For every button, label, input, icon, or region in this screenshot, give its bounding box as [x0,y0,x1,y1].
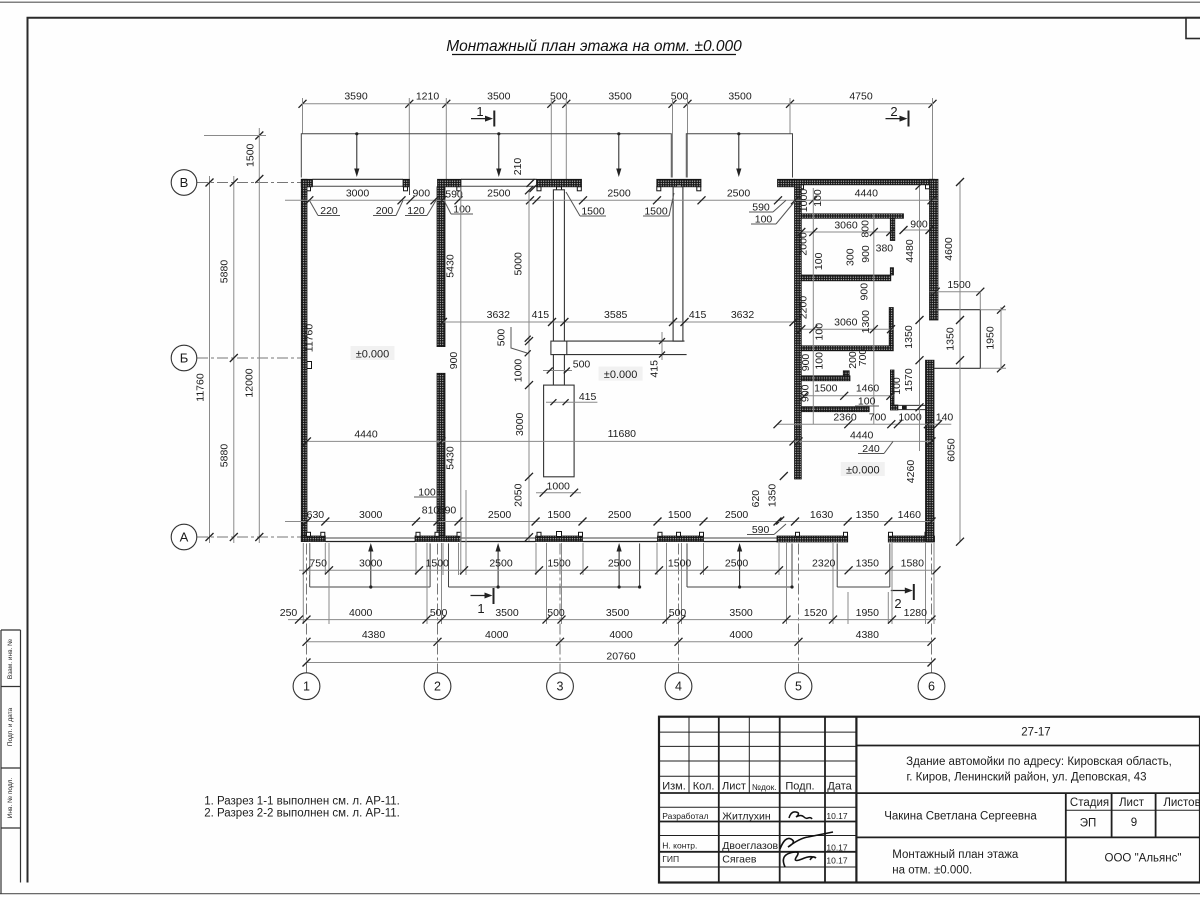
svg-text:415: 415 [579,391,597,403]
svg-text:900: 900 [448,352,460,370]
svg-text:3632: 3632 [731,309,755,321]
svg-text:1500: 1500 [814,383,838,395]
svg-text:630: 630 [307,509,325,521]
svg-text:1580: 1580 [901,558,925,570]
svg-text:620: 620 [750,490,762,508]
svg-text:810: 810 [422,505,440,517]
svg-text:4000: 4000 [729,629,753,641]
svg-text:11760: 11760 [195,373,207,402]
svg-text:250: 250 [280,607,298,619]
svg-text:1300: 1300 [860,310,872,334]
svg-text:3060: 3060 [834,317,858,329]
svg-text:2: 2 [434,680,441,694]
svg-text:1. Разрез 1-1 выполнен см. л.: 1. Разрез 1-1 выполнен см. л. АР-11. [204,796,400,808]
svg-text:1500: 1500 [426,558,450,570]
svg-text:Дата: Дата [827,781,852,793]
svg-text:1460: 1460 [898,509,922,521]
svg-text:3500: 3500 [495,607,519,619]
svg-text:Подп. и дата: Подп. и дата [7,707,14,746]
svg-text:2320: 2320 [812,558,836,570]
svg-text:3000: 3000 [346,188,370,200]
svg-text:±0.000: ±0.000 [356,349,390,361]
svg-text:1350: 1350 [903,325,915,349]
svg-text:6050: 6050 [945,438,957,462]
svg-text:900: 900 [859,283,871,301]
svg-text:4750: 4750 [849,91,873,103]
svg-text:1000: 1000 [547,480,571,492]
svg-text:3: 3 [557,680,564,694]
svg-text:3000: 3000 [514,412,526,436]
svg-text:5880: 5880 [219,444,231,468]
svg-text:380: 380 [876,243,894,255]
svg-text:750: 750 [309,558,327,570]
svg-text:900: 900 [800,354,812,372]
svg-text:2200: 2200 [798,296,810,320]
svg-text:3500: 3500 [728,91,752,103]
svg-text:300: 300 [845,248,857,266]
svg-text:5000: 5000 [512,252,524,276]
svg-text:27-17: 27-17 [1021,727,1050,739]
svg-text:590: 590 [439,505,457,517]
svg-text:500: 500 [547,607,565,619]
svg-text:3000: 3000 [359,558,383,570]
svg-text:6: 6 [928,680,935,694]
svg-text:1630: 1630 [810,509,834,521]
svg-text:4440: 4440 [354,429,378,441]
svg-text:Листов: Листов [1163,797,1200,809]
svg-text:900: 900 [800,384,812,402]
svg-text:Взам. инв. №: Взам. инв. № [7,639,14,679]
svg-text:Б: Б [180,351,189,366]
svg-text:Подп.: Подп. [785,781,814,793]
svg-text:А: А [180,530,189,545]
svg-text:Двоеглазов: Двоеглазов [722,840,778,852]
svg-text:1500: 1500 [547,509,571,521]
svg-text:2360: 2360 [833,412,857,424]
svg-text:1350: 1350 [945,327,957,351]
svg-text:140: 140 [936,412,954,424]
svg-text:3585: 3585 [604,309,628,321]
svg-text:590: 590 [445,189,463,201]
svg-text:210: 210 [512,158,524,176]
svg-text:1460: 1460 [856,383,880,395]
svg-text:ЭП: ЭП [1080,818,1097,830]
svg-text:500: 500 [430,607,448,619]
svg-text:Лист: Лист [1119,797,1145,809]
svg-text:1: 1 [477,601,484,616]
svg-text:11680: 11680 [608,428,637,440]
svg-text:2: 2 [890,104,897,119]
svg-text:10.17: 10.17 [826,843,848,853]
svg-text:1: 1 [303,680,310,694]
svg-text:Стадия: Стадия [1070,797,1109,809]
svg-text:5: 5 [795,680,802,694]
svg-text:100: 100 [891,377,903,395]
svg-text:500: 500 [550,91,568,103]
svg-text:500: 500 [495,329,507,347]
svg-text:Монтажный план этажа на отм. ±: Монтажный план этажа на отм. ±0.000 [446,38,742,55]
svg-text:1350: 1350 [767,484,779,508]
svg-text:800: 800 [860,220,872,238]
svg-text:Монтажный план этажа: Монтажный план этажа [892,849,1019,861]
svg-text:4000: 4000 [485,629,509,641]
svg-text:9: 9 [1131,817,1137,829]
svg-text:3500: 3500 [606,607,630,619]
svg-text:1950: 1950 [856,607,880,619]
svg-text:1280: 1280 [904,607,928,619]
svg-text:500: 500 [669,607,687,619]
svg-text:500: 500 [671,91,689,103]
svg-text:100: 100 [814,352,826,370]
svg-text:4: 4 [675,680,682,694]
svg-text:1000: 1000 [898,412,922,424]
svg-text:1500: 1500 [668,509,692,521]
svg-text:2500: 2500 [725,558,749,570]
svg-text:2: 2 [894,596,901,611]
svg-text:5430: 5430 [445,446,457,470]
svg-text:700: 700 [857,349,869,367]
svg-text:900: 900 [413,188,431,200]
svg-text:±0.000: ±0.000 [846,465,880,477]
svg-text:500: 500 [573,359,591,371]
svg-text:2000: 2000 [797,232,809,256]
svg-text:2500: 2500 [488,509,512,521]
svg-text:11760: 11760 [304,324,316,353]
svg-text:3500: 3500 [487,91,511,103]
svg-text:Житлухин: Житлухин [722,810,771,822]
svg-text:100: 100 [813,252,825,270]
svg-text:10.17: 10.17 [826,811,848,821]
svg-text:2500: 2500 [725,509,749,521]
svg-text:4600: 4600 [943,237,955,261]
svg-text:1000: 1000 [513,359,525,383]
svg-text:1950: 1950 [985,326,997,350]
svg-text:3632: 3632 [487,309,511,321]
svg-text:2. Разрез 2-2 выполнен см. л.: 2. Разрез 2-2 выполнен см. л. АР-11. [204,807,400,819]
svg-text:415: 415 [649,360,661,378]
svg-text:5430: 5430 [445,254,457,278]
svg-text:4440: 4440 [850,429,874,441]
svg-text:4480: 4480 [904,239,916,263]
svg-text:4260: 4260 [905,460,917,484]
svg-text:3590: 3590 [344,91,368,103]
svg-text:100: 100 [814,323,826,341]
svg-text:1500: 1500 [947,279,971,291]
svg-text:г. Киров, Ленинский район, ул.: г. Киров, Ленинский район, ул. Деповская… [906,772,1146,784]
svg-text:1500: 1500 [668,558,692,570]
svg-text:5880: 5880 [219,260,231,284]
svg-text:3000: 3000 [359,509,383,521]
svg-text:±0.000: ±0.000 [604,369,638,381]
svg-text:4440: 4440 [855,188,879,200]
svg-text:2500: 2500 [607,188,631,200]
svg-text:4000: 4000 [609,629,633,641]
svg-text:Разработал: Разработал [662,811,708,821]
svg-text:3500: 3500 [608,91,632,103]
svg-text:1210: 1210 [416,91,440,103]
svg-text:1350: 1350 [856,558,880,570]
svg-text:Здание автомойки по адресу: Ки: Здание автомойки по адресу: Кировская об… [906,756,1172,768]
svg-text:4380: 4380 [362,629,386,641]
svg-text:2500: 2500 [608,558,632,570]
svg-text:Лист: Лист [722,781,746,793]
svg-text:Чакина Светлана Сергеевна: Чакина Светлана Сергеевна [884,811,1037,823]
svg-text:12000: 12000 [244,368,256,397]
svg-text:В: В [180,175,189,190]
svg-text:4000: 4000 [349,607,373,619]
svg-text:1520: 1520 [804,607,828,619]
svg-text:2500: 2500 [727,188,751,200]
svg-text:415: 415 [532,309,550,321]
svg-text:1500: 1500 [245,143,257,167]
svg-text:20760: 20760 [606,650,635,662]
svg-text:1350: 1350 [856,509,880,521]
svg-text:1: 1 [476,104,483,119]
svg-text:1570: 1570 [903,368,915,392]
svg-text:Кол.: Кол. [693,781,715,793]
svg-text:Изм.: Изм. [662,781,686,793]
svg-text:2050: 2050 [512,483,524,507]
svg-text:2500: 2500 [487,188,511,200]
svg-text:3060: 3060 [834,219,858,231]
svg-text:415: 415 [689,309,707,321]
svg-text:4380: 4380 [856,629,880,641]
svg-text:№док.: №док. [752,782,777,792]
svg-text:700: 700 [869,412,887,424]
svg-text:ГИП: ГИП [662,854,679,864]
svg-text:10.17: 10.17 [826,856,848,866]
svg-text:1500: 1500 [547,558,571,570]
svg-text:900: 900 [860,245,872,263]
svg-text:2500: 2500 [489,558,513,570]
svg-text:2500: 2500 [608,509,632,521]
svg-text:Сягаев: Сягаев [722,853,757,865]
svg-text:Н. контр.: Н. контр. [662,840,697,850]
svg-text:на отм. ±0.000.: на отм. ±0.000. [892,864,972,876]
svg-text:1000: 1000 [798,189,810,213]
svg-text:Инв. № подл.: Инв. № подл. [7,778,14,819]
svg-text:3500: 3500 [729,607,753,619]
svg-text:ООО "Альянс": ООО "Альянс" [1105,853,1182,865]
